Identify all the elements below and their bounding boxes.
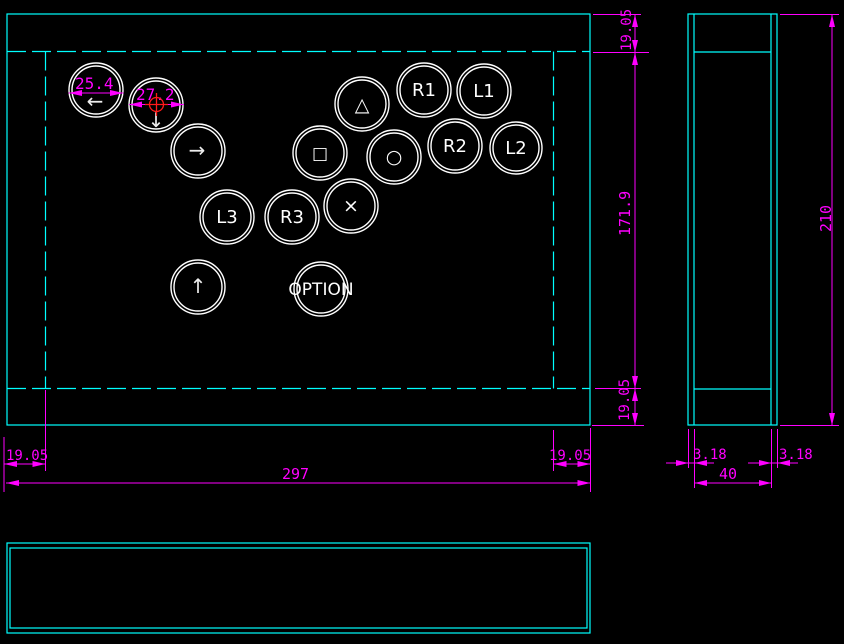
side-view [688, 14, 777, 425]
button-circle: ○ [367, 130, 421, 184]
dim-arrow-top [829, 15, 835, 28]
dim-text: 40 [719, 465, 737, 483]
dim-text-margin-top: 19.05 [619, 9, 635, 51]
bottom-view [7, 543, 590, 633]
dim-arrow-right [759, 480, 772, 486]
dim-side-vertical-chain: 19.05 171.9 19.05 [592, 9, 649, 426]
button-r2: R2 [428, 119, 482, 173]
dim-text: 25.4 [75, 74, 114, 93]
button-l1: L1 [457, 64, 511, 118]
button-dpad-up: ↑ [171, 260, 225, 314]
dim-arrow-left [676, 460, 689, 466]
dim-text: 297 [282, 465, 309, 483]
button-dpad-right: → [171, 124, 225, 178]
right-arrow-glyph: → [189, 138, 206, 162]
button-l2: L2 [490, 122, 542, 174]
dim-front-margin-left: 19.05 [4, 390, 48, 492]
dim-text: 19.05 [549, 448, 591, 464]
button-label: R1 [412, 80, 436, 101]
button-cross: × [324, 179, 378, 233]
cad-drawing-canvas[interactable]: ← ↓ → △ R1 L1 [0, 0, 844, 644]
cross-glyph: × [343, 195, 359, 217]
dim-side-wall-left: 3.18 [666, 429, 727, 468]
dim-text: 27.2 [136, 85, 175, 104]
button-label: R2 [443, 136, 467, 157]
dim-arrow-left [6, 480, 19, 486]
side-view-outline [688, 14, 777, 425]
button-triangle: △ [335, 77, 389, 131]
button-l3: L3 [200, 190, 254, 244]
dim-arrow [632, 53, 638, 66]
button-label: L2 [505, 138, 526, 159]
square-glyph: □ [312, 144, 328, 164]
button-label: R3 [280, 207, 304, 228]
dim-text: 3.18 [693, 447, 727, 463]
dim-arrow-left [759, 460, 772, 466]
up-arrow-glyph: ↑ [190, 274, 207, 298]
button-r1: R1 [397, 63, 451, 117]
dim-text-margin-bottom: 19.05 [617, 379, 633, 421]
button-square: □ [293, 126, 347, 180]
dim-text: 19.05 [6, 448, 48, 464]
button-r3: R3 [265, 190, 319, 244]
dim-text-height-inner: 171.9 [616, 191, 634, 236]
button-option: OPTION [288, 262, 353, 316]
dim-left-button-diameter: 25.4 [69, 74, 124, 96]
dim-side-height-total: 210 [780, 15, 839, 426]
button-label: OPTION [288, 280, 353, 300]
dim-arrow-left [695, 480, 708, 486]
button-label: L3 [216, 207, 237, 228]
dim-text: 210 [817, 205, 835, 232]
dim-down-button-diameter: 27.2 [129, 85, 184, 116]
dim-side-wall-right: 3.18 [748, 429, 813, 468]
circle-glyph: ○ [386, 146, 403, 168]
triangle-glyph: △ [355, 94, 370, 116]
dim-arrow-right [578, 480, 591, 486]
button-label: L1 [473, 81, 494, 102]
bottom-view-outline [7, 543, 590, 633]
bottom-view-inner-outline [10, 548, 587, 628]
dim-arrow-bottom [829, 413, 835, 426]
dim-front-width: 297 [6, 465, 591, 486]
cad-drawing: ← ↓ → △ R1 L1 [0, 0, 844, 644]
dim-text: 3.18 [779, 447, 813, 463]
